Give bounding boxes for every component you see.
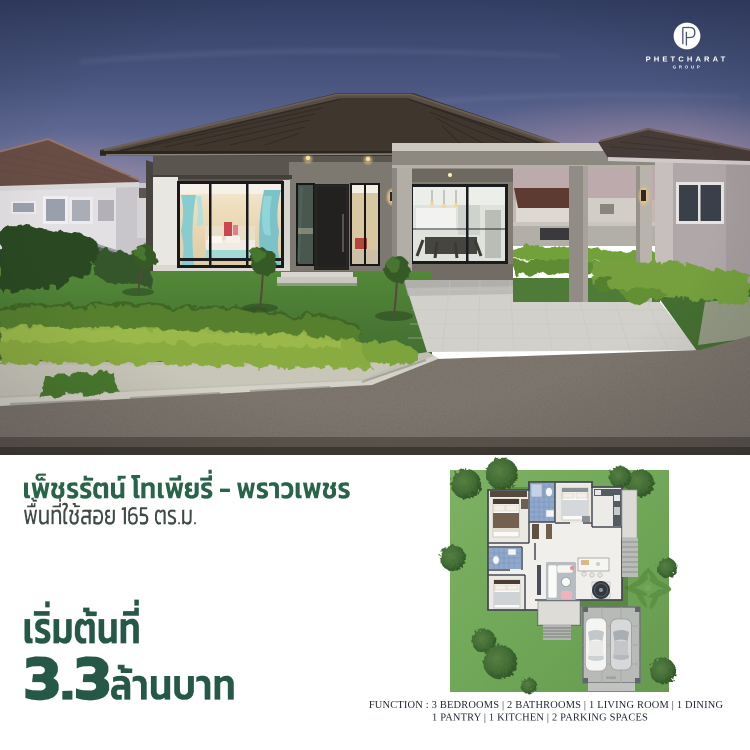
svg-text:1 PANTRY | 1 KITCHEN | 2 PA: 1 PANTRY | 1 KITCHEN | 2 PARKING SPACES	[432, 713, 648, 724]
svg-text:GROUP: GROUP	[673, 65, 703, 70]
svg-text:PHETCHARAT: PHETCHARAT	[646, 55, 729, 64]
svg-text:FUNCTION : 3 BEDROOMS | 2 B: FUNCTION : 3 BEDROOMS | 2 BATHROOMS | 1 …	[369, 700, 724, 711]
svg-text:90089: 90089	[606, 676, 616, 680]
